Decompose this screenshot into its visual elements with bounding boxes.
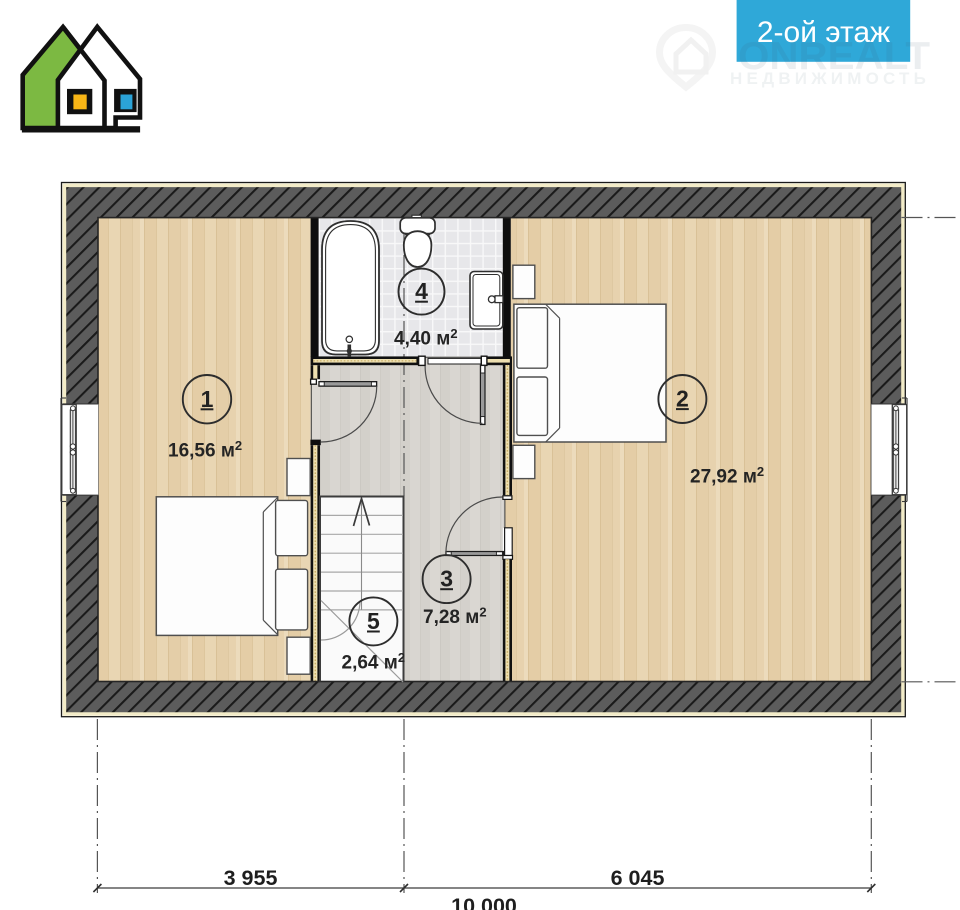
svg-text:7,28 м2: 7,28 м2 [423, 604, 487, 628]
svg-text:27,92 м2: 27,92 м2 [690, 464, 764, 488]
svg-text:2,64 м2: 2,64 м2 [342, 650, 406, 674]
svg-text:4,40 м2: 4,40 м2 [394, 326, 458, 350]
svg-text:1: 1 [201, 386, 214, 412]
svg-text:6 045: 6 045 [611, 866, 665, 890]
svg-text:2: 2 [676, 386, 689, 412]
svg-text:НЕДВИЖИМОСТЬ: НЕДВИЖИМОСТЬ [730, 69, 930, 88]
svg-text:16,56 м2: 16,56 м2 [168, 438, 242, 462]
svg-text:4: 4 [415, 278, 428, 304]
svg-text:3 955: 3 955 [224, 866, 278, 890]
svg-text:5: 5 [367, 608, 380, 634]
svg-text:3: 3 [440, 566, 453, 592]
svg-text:10 000: 10 000 [451, 894, 517, 910]
